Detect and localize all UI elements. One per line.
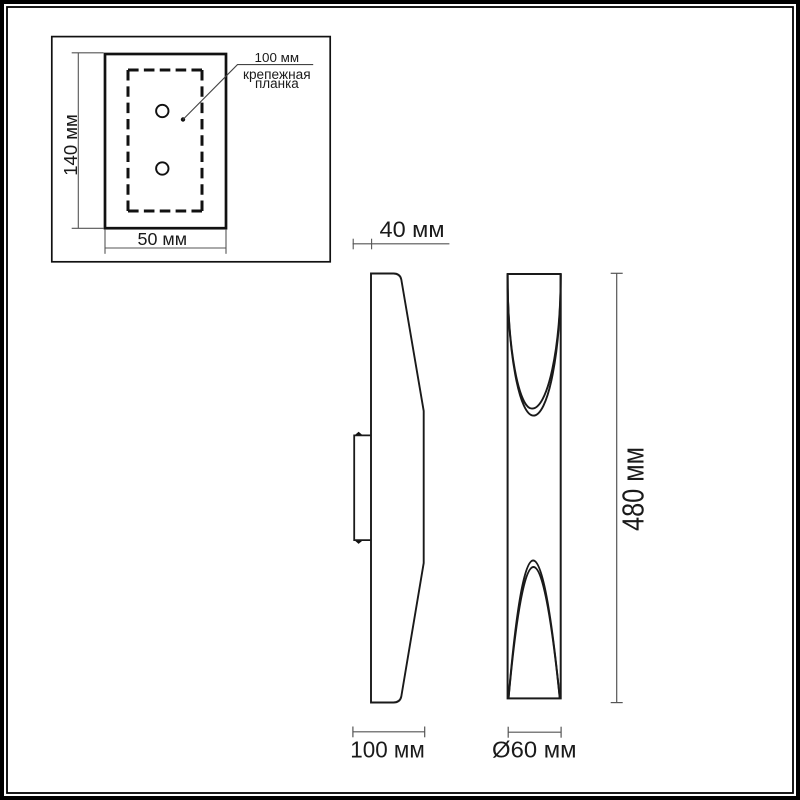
svg-text:100 мм: 100 мм <box>255 50 300 65</box>
svg-text:40 мм: 40 мм <box>380 217 445 242</box>
svg-text:планка: планка <box>255 76 299 91</box>
svg-text:Ø60 мм: Ø60 мм <box>492 736 577 762</box>
svg-text:100 мм: 100 мм <box>350 736 425 762</box>
svg-text:50 мм: 50 мм <box>138 229 188 249</box>
svg-text:140 мм: 140 мм <box>61 114 81 176</box>
svg-text:480 мм: 480 мм <box>616 447 650 531</box>
